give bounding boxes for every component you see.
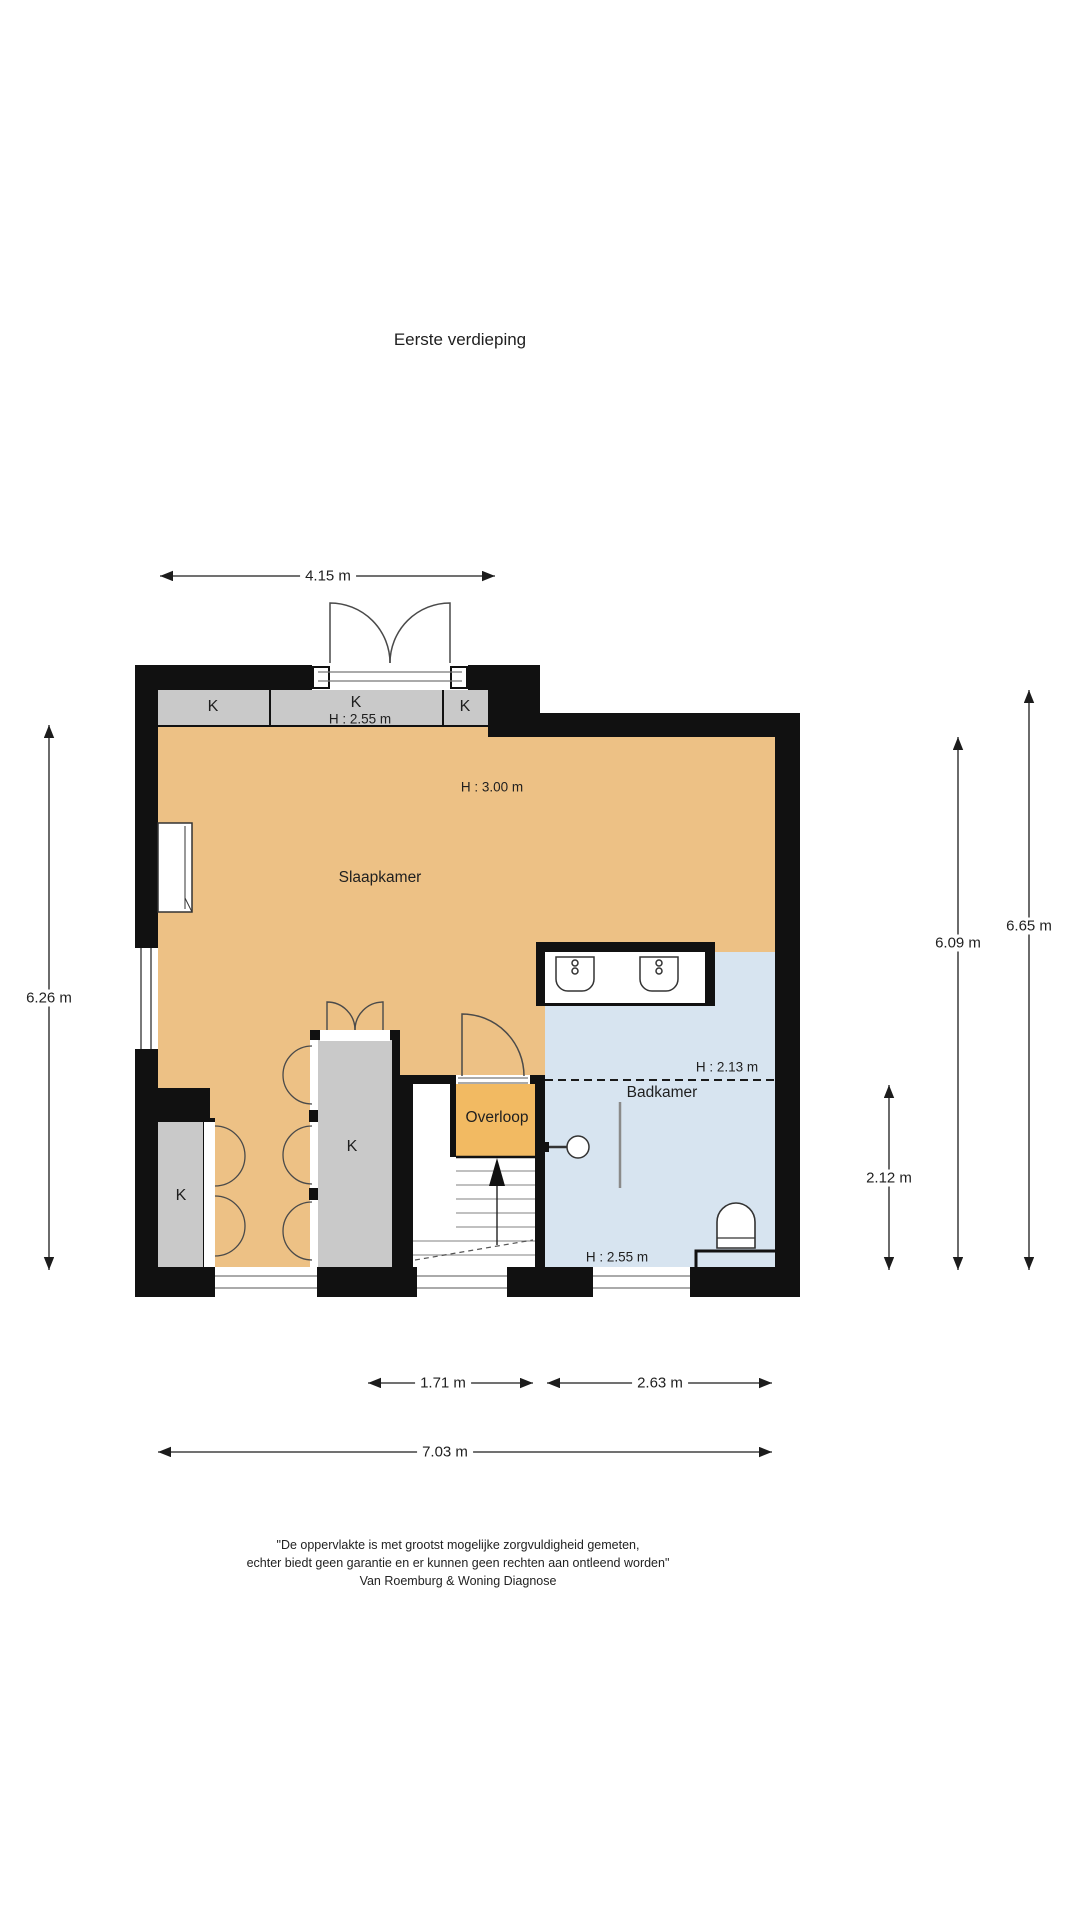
dim-label-right-outer: 6.65 m — [1001, 918, 1057, 935]
window-bottom-1 — [215, 1269, 317, 1295]
wall-stair-top — [392, 1075, 462, 1084]
window-left — [135, 945, 158, 1052]
closet-divider — [269, 690, 271, 725]
dim-label-bottom-badkamer: 2.63 m — [632, 1375, 688, 1392]
wall-bottom-seg — [690, 1267, 800, 1297]
badkamer-height-upper-label: H : 2.13 m — [696, 1060, 758, 1075]
closet-divider — [442, 690, 444, 725]
wall-top-b — [540, 713, 800, 737]
wall-vanity-left — [536, 942, 545, 1006]
wall-top-left — [135, 665, 312, 690]
wall-vanity-top — [536, 942, 715, 952]
window-bottom-2 — [417, 1269, 507, 1295]
vanity-counter — [545, 952, 705, 1006]
door-hinge-block — [309, 1188, 318, 1200]
window-bottom-3 — [593, 1269, 690, 1295]
wall-bottom-seg — [135, 1267, 215, 1297]
closet-left-door-strip — [204, 1122, 215, 1267]
door-opening-overloop — [456, 1075, 530, 1084]
closet-label: K — [176, 1187, 187, 1205]
door-hinge-block — [309, 1110, 318, 1122]
dim-label-left: 6.26 m — [21, 990, 77, 1007]
wall-bottom-seg — [317, 1267, 417, 1297]
dim-label-right-lower: 2.12 m — [861, 1170, 917, 1187]
disclaimer-line: "De oppervlakte is met grootst mogelijke… — [247, 1536, 670, 1554]
disclaimer-line: echter biedt geen garantie en er kunnen … — [247, 1554, 670, 1572]
badkamer-height-lower-label: H : 2.55 m — [586, 1250, 648, 1265]
room-label-overloop: Overloop — [466, 1109, 529, 1127]
closet-label: K — [460, 698, 471, 716]
dim-label-bottom-total: 7.03 m — [417, 1444, 473, 1461]
closet-mid-top-door-opening — [320, 1030, 390, 1041]
disclaimer-line: Van Roemburg & Woning Diagnose — [247, 1572, 670, 1590]
closet-label: K — [347, 1138, 358, 1156]
wall-overloop-right — [535, 1078, 545, 1267]
closet-label: K — [208, 698, 219, 716]
wall-stair-left — [392, 1075, 413, 1267]
room-label-slaapkamer: Slaapkamer — [339, 869, 422, 887]
closet-label: K — [351, 694, 362, 712]
door-opening-top — [312, 665, 468, 690]
slaapkamer-height-label: H : 3.00 m — [461, 780, 523, 795]
door-post — [312, 666, 330, 689]
floorplan-canvas: Eerste verdieping — [0, 0, 1080, 1920]
wall-left-step — [135, 1088, 210, 1118]
closet-mid-door-strip — [310, 1040, 318, 1267]
disclaimer: "De oppervlakte is met grootst mogelijke… — [247, 1536, 670, 1590]
overloop-divider-wall — [450, 1084, 456, 1157]
dim-label-bottom-stair: 1.71 m — [415, 1375, 471, 1392]
page-title: Eerste verdieping — [394, 330, 526, 350]
wall-right — [775, 713, 800, 1297]
wall-step — [488, 665, 540, 737]
wall-vanity-right — [705, 942, 715, 1006]
room-label-badkamer: Badkamer — [627, 1084, 698, 1102]
wall-bottom-seg — [507, 1267, 593, 1297]
wall-left-upper — [135, 665, 158, 945]
dim-label-top: 4.15 m — [300, 568, 356, 585]
dim-label-right-inner: 6.09 m — [930, 935, 986, 952]
door-post — [450, 666, 468, 689]
closet-height-label: H : 2.55 m — [329, 712, 391, 727]
